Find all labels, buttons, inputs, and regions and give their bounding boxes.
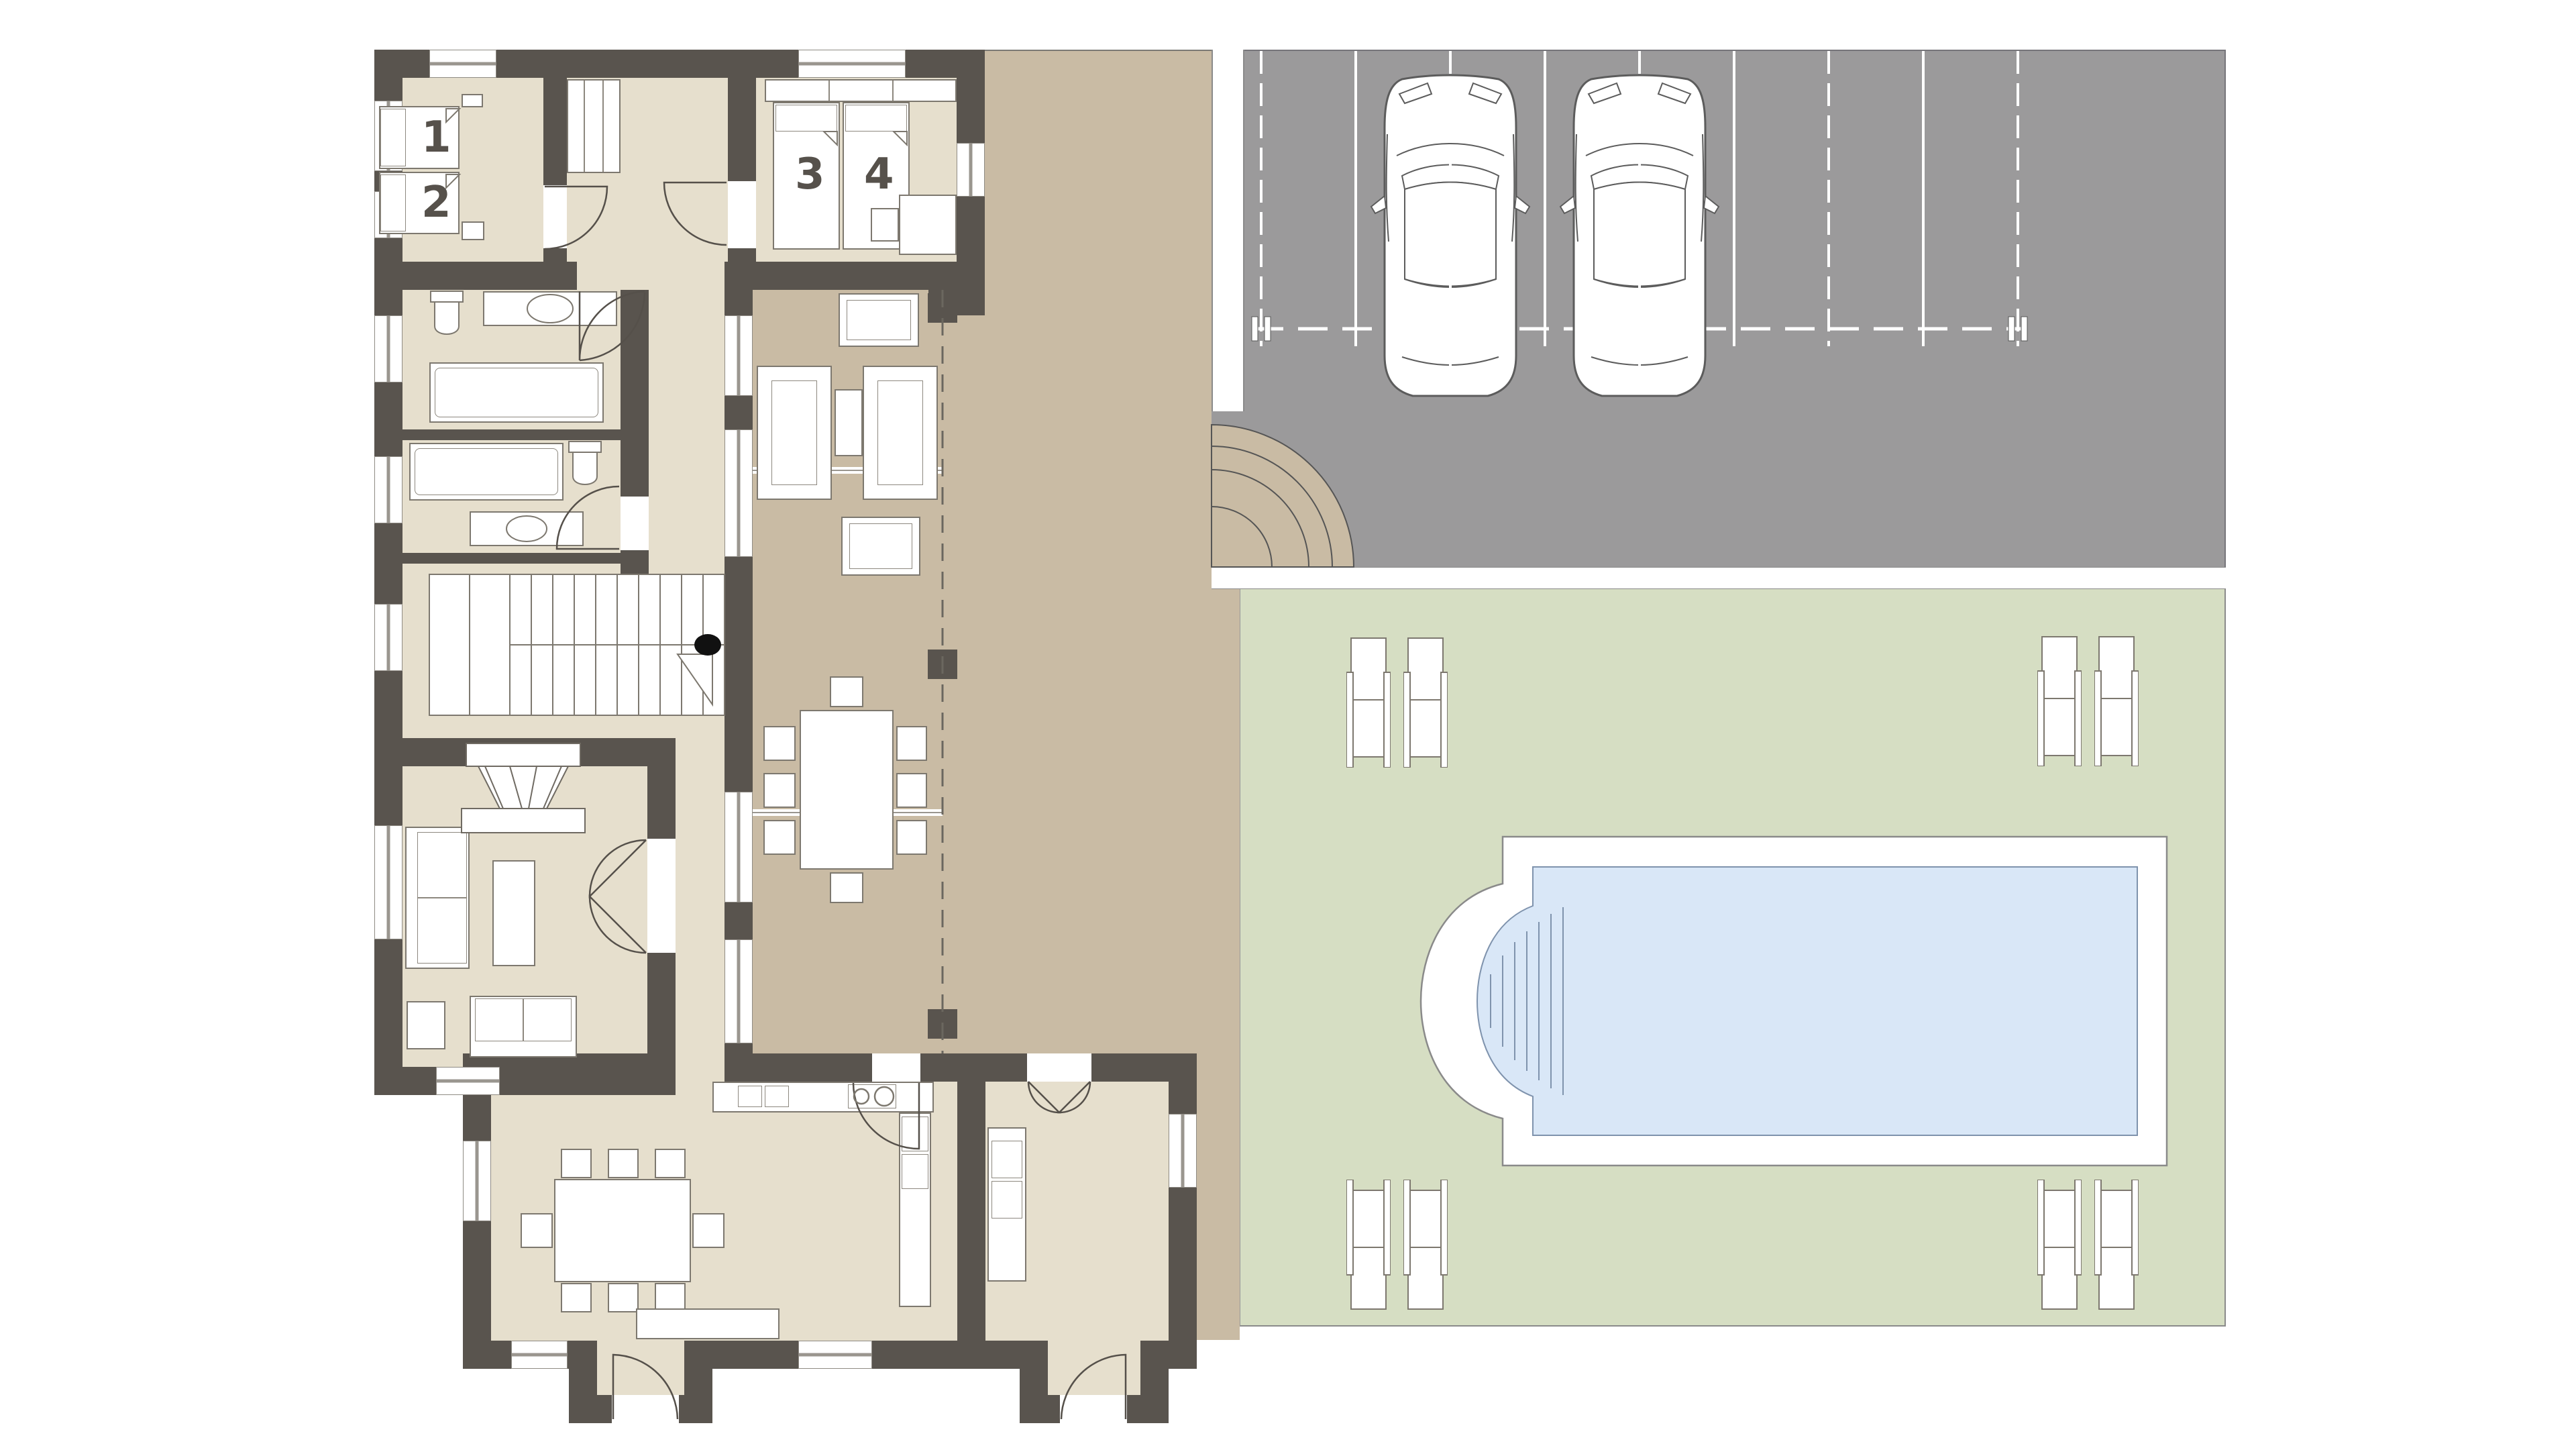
pool-water [1477,867,2137,1135]
toilet-bathB [569,442,601,484]
pool [1421,837,2167,1166]
lounger-top-left-1 [1346,638,1391,768]
plan-overlay [0,0,2576,1450]
wardrobe-divider-2 [892,81,894,101]
lounger-top-left-2 [1403,638,1448,768]
lounger-bottom-left-2 [1403,1180,1448,1309]
curved-steps [1212,425,1354,567]
door-arcs [545,183,1126,1419]
lounger-bottom-left-1 [1346,1180,1391,1309]
closet-rail-2 [602,81,604,172]
closet-rail-1 [584,81,585,172]
lounger-top-right-1 [2037,637,2082,766]
stair-location-dot [694,634,721,656]
sink-bathB [506,516,547,541]
lounger-bottom-right-2 [2094,1180,2139,1309]
wardrobe-divider-1 [828,81,830,101]
floor-plan-canvas: 1 2 3 4 [0,0,2576,1450]
bed-fold-corners [446,109,907,188]
lounger-top-right-2 [2094,637,2139,766]
lounger-bottom-right-1 [2037,1180,2082,1309]
sink-bathA [527,295,573,323]
toilet-bathA [431,291,463,334]
fireplace [462,743,585,833]
staircase [429,574,724,715]
stove-burners-icon [854,1087,894,1106]
